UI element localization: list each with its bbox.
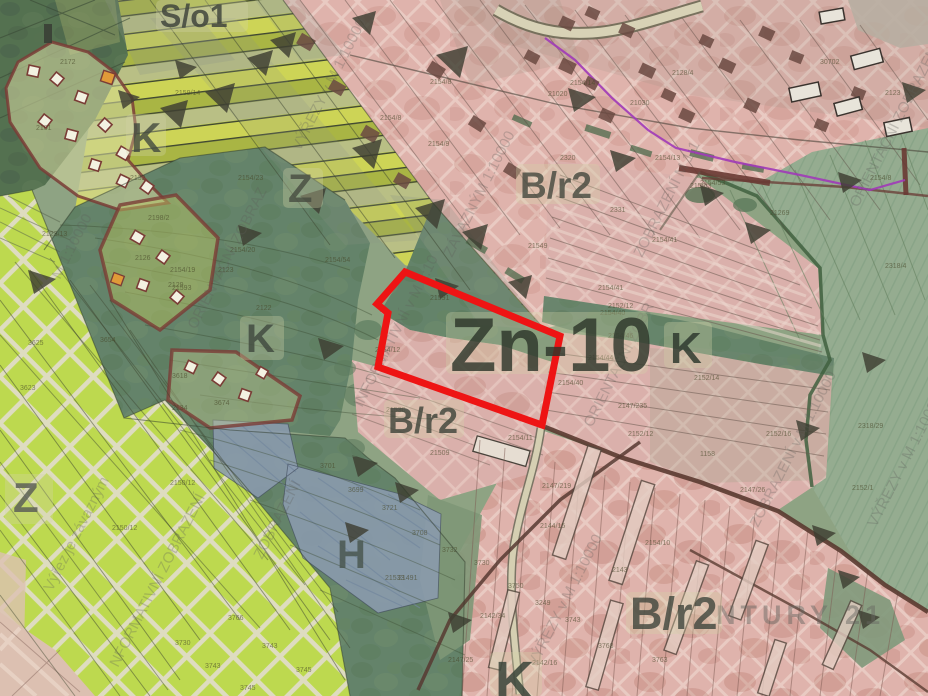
svg-text:3743: 3743 [205,663,221,670]
svg-text:Zn-10: Zn-10 [450,303,653,388]
svg-text:B/r2: B/r2 [388,400,458,441]
svg-text:3721: 3721 [382,505,398,512]
svg-text:K: K [670,324,702,373]
svg-text:21591: 21591 [430,295,450,302]
svg-text:2126: 2126 [135,255,151,262]
svg-text:2154/41: 2154/41 [598,285,623,292]
svg-text:2101: 2101 [36,125,52,132]
svg-text:2154/23: 2154/23 [238,175,263,182]
svg-text:3763: 3763 [652,657,668,664]
svg-text:2154/54: 2154/54 [325,257,350,264]
svg-text:2318/29: 2318/29 [858,423,883,430]
svg-text:2154/19: 2154/19 [170,267,195,274]
svg-text:K: K [131,114,161,161]
svg-text:K: K [495,651,534,696]
svg-text:H: H [337,533,366,577]
svg-text:3743: 3743 [565,617,581,624]
svg-text:3625: 3625 [28,340,44,347]
svg-text:21020: 21020 [548,91,568,98]
svg-text:1158: 1158 [700,451,715,458]
svg-text:2144/15: 2144/15 [540,523,565,530]
svg-text:30702: 30702 [820,59,840,66]
svg-text:K: K [246,317,275,361]
svg-text:21509: 21509 [430,450,450,457]
svg-text:2152/12: 2152/12 [628,431,653,438]
svg-text:21549: 21549 [528,243,548,250]
svg-text:2154/11: 2154/11 [508,435,533,442]
svg-text:2154/8: 2154/8 [380,115,402,122]
svg-text:2331: 2331 [610,207,626,214]
svg-text:3743: 3743 [262,643,278,650]
svg-text:2154/10: 2154/10 [645,540,670,547]
svg-text:2122: 2122 [256,305,272,312]
svg-text:3730: 3730 [474,560,490,567]
svg-text:2132: 2132 [130,175,146,182]
svg-text:3745: 3745 [240,685,256,692]
svg-text:2318/4: 2318/4 [885,263,907,270]
svg-text:3750: 3750 [508,583,524,590]
svg-text:2143: 2143 [612,567,628,574]
svg-text:3674: 3674 [214,400,230,407]
svg-text:2320: 2320 [560,155,576,162]
svg-text:3654: 3654 [100,337,116,344]
svg-text:2150/12: 2150/12 [170,480,195,487]
svg-text:2152/1: 2152/1 [852,485,874,492]
svg-text:21030: 21030 [630,100,650,107]
svg-text:S/o1: S/o1 [160,0,228,34]
svg-text:21269: 21269 [770,210,790,217]
svg-text:2154/9: 2154/9 [428,141,450,148]
svg-text:3623: 3623 [20,385,36,392]
svg-text:2147/25: 2147/25 [448,657,473,664]
svg-text:3766: 3766 [228,615,244,622]
svg-text:2128/4: 2128/4 [672,70,694,77]
svg-text:3745: 3745 [296,667,312,674]
svg-text:B/r2: B/r2 [630,588,718,639]
svg-text:3701: 3701 [320,463,336,470]
svg-text:2154/8: 2154/8 [430,79,452,86]
svg-text:Z: Z [288,167,312,211]
svg-text:2129: 2129 [168,282,184,289]
svg-text:2147/219: 2147/219 [542,483,571,490]
svg-text:2154/14: 2154/14 [570,80,595,87]
svg-text:2134: 2134 [172,405,188,412]
svg-text:3708: 3708 [412,530,428,537]
svg-text:3249: 3249 [535,600,551,607]
svg-text:2152/16: 2152/16 [766,431,791,438]
svg-text:3618: 3618 [172,373,188,380]
svg-text:2150/12: 2150/12 [112,525,137,532]
svg-text:2172: 2172 [60,59,76,66]
svg-text:B/r2: B/r2 [520,165,592,206]
svg-text:2147/235: 2147/235 [618,403,647,410]
svg-text:2142/34: 2142/34 [480,613,505,620]
svg-text:3699: 3699 [348,487,364,494]
svg-text:NTURY 21: NTURY 21 [716,600,885,630]
svg-text:3768: 3768 [598,643,614,650]
svg-text:2123: 2123 [885,90,901,97]
svg-text:21491: 21491 [398,575,418,582]
svg-text:2159/14: 2159/14 [175,90,200,97]
svg-text:3730: 3730 [175,640,191,647]
svg-text:2198/2: 2198/2 [148,215,170,222]
svg-text:2152/14: 2152/14 [694,375,719,382]
svg-text:Z: Z [13,474,39,521]
svg-text:2159/3: 2159/3 [690,183,712,190]
